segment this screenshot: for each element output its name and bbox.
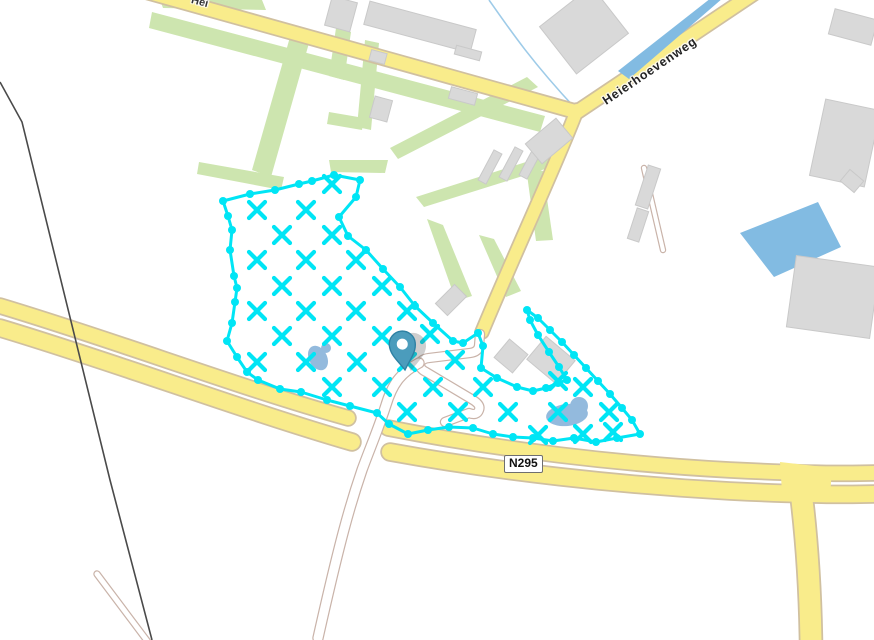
selection-x-mark (274, 278, 290, 294)
selection-vertex-handle[interactable] (445, 423, 453, 431)
track-casing (318, 363, 419, 638)
selection-vertex-handle[interactable] (469, 424, 477, 432)
selection-x-mark (348, 252, 364, 268)
selection-x-mark (274, 227, 290, 243)
selection-x-mark (324, 379, 340, 395)
selection-vertex-handle[interactable] (233, 284, 241, 292)
selection-vertex-handle[interactable] (233, 353, 241, 361)
selection-vertex-handle[interactable] (493, 374, 501, 382)
selection-vertex-handle[interactable] (526, 316, 534, 324)
selection-vertex-handle[interactable] (549, 437, 557, 445)
selection-vertex-handle[interactable] (228, 319, 236, 327)
map-canvas[interactable] (0, 0, 874, 640)
selection-vertex-handle[interactable] (246, 190, 254, 198)
green-area (427, 219, 472, 301)
building (635, 165, 660, 209)
selection-x-mark (274, 328, 290, 344)
selection-vertex-handle[interactable] (429, 319, 437, 327)
selection-vertex-handle[interactable] (582, 364, 590, 372)
selection-x-mark (374, 278, 390, 294)
selection-x-mark (500, 404, 516, 420)
building (325, 0, 358, 32)
selection-vertex-handle[interactable] (546, 326, 554, 334)
road (0, 306, 348, 418)
selection-vertex-handle[interactable] (594, 377, 602, 385)
green-area (329, 160, 388, 173)
selection-vertex-handle[interactable] (558, 338, 566, 346)
building (810, 99, 874, 187)
selection-vertex-handle[interactable] (228, 226, 236, 234)
selection-vertex-handle[interactable] (613, 434, 621, 442)
selection-vertex-handle[interactable] (529, 434, 537, 442)
map-viewport[interactable]: Hei Heierhoevenweg N295 (0, 0, 874, 640)
selection-x-mark (324, 227, 340, 243)
selection-vertex-handle[interactable] (489, 430, 497, 438)
selection-x-mark (348, 303, 364, 319)
selection-vertex-handle[interactable] (534, 314, 542, 322)
selection-vertex-handle[interactable] (563, 376, 571, 384)
pond (570, 397, 588, 415)
selection-vertex-handle[interactable] (555, 363, 563, 371)
selection-x-mark (298, 202, 314, 218)
selection-vertex-handle[interactable] (628, 416, 636, 424)
selection-vertex-handle[interactable] (477, 364, 485, 372)
selection-vertex-handle[interactable] (230, 272, 238, 280)
selection-vertex-handle[interactable] (474, 329, 482, 337)
selection-vertex-handle[interactable] (570, 434, 578, 442)
selection-vertex-handle[interactable] (636, 430, 644, 438)
selection-vertex-handle[interactable] (523, 306, 531, 314)
selection-vertex-handle[interactable] (243, 368, 251, 376)
selection-vertex-handle[interactable] (226, 246, 234, 254)
selection-x-mark (249, 303, 265, 319)
selection-vertex-handle[interactable] (459, 339, 467, 347)
selection-vertex-handle[interactable] (545, 348, 553, 356)
selection-vertex-handle[interactable] (295, 180, 303, 188)
selection-vertex-handle[interactable] (330, 171, 338, 179)
selection-vertex-handle[interactable] (592, 438, 600, 446)
selection-x-mark (475, 379, 491, 395)
selection-vertex-handle[interactable] (424, 426, 432, 434)
selection-vertex-handle[interactable] (352, 193, 360, 201)
building (828, 9, 874, 46)
selection-x-mark (249, 202, 265, 218)
selection-x-mark (374, 328, 390, 344)
selection-x-mark (298, 303, 314, 319)
selection-vertex-handle[interactable] (254, 376, 262, 384)
selection-vertex-handle[interactable] (356, 176, 364, 184)
selection-vertex-handle[interactable] (542, 384, 550, 392)
selection-vertex-handle[interactable] (554, 379, 562, 387)
selection-vertex-handle[interactable] (404, 430, 412, 438)
selection-vertex-handle[interactable] (308, 177, 316, 185)
selection-vertex-handle[interactable] (396, 283, 404, 291)
selection-vertex-handle[interactable] (224, 212, 232, 220)
canal (618, 0, 723, 79)
building (627, 208, 648, 242)
selection-x-mark (249, 354, 265, 370)
road (800, 484, 811, 640)
selection-vertex-handle[interactable] (618, 404, 626, 412)
selection-vertex-handle[interactable] (385, 420, 393, 428)
track (97, 574, 148, 640)
selection-vertex-handle[interactable] (529, 387, 537, 395)
selection-vertex-handle[interactable] (346, 402, 354, 410)
selection-x-mark (575, 379, 591, 395)
selection-x-mark (298, 252, 314, 268)
road (0, 328, 352, 442)
selection-vertex-handle[interactable] (271, 186, 279, 194)
selection-vertex-handle[interactable] (606, 390, 614, 398)
building (364, 1, 476, 53)
selection-x-mark (249, 252, 265, 268)
building (494, 339, 528, 373)
building (786, 256, 874, 339)
selection-vertex-handle[interactable] (231, 298, 239, 306)
selection-x-mark (324, 328, 340, 344)
selection-x-mark (349, 354, 365, 370)
building (540, 0, 629, 74)
selection-vertex-handle[interactable] (570, 351, 578, 359)
selection-x-mark (324, 278, 340, 294)
selection-vertex-handle[interactable] (344, 232, 352, 240)
selection-vertex-handle[interactable] (479, 342, 487, 350)
selection-vertex-handle[interactable] (223, 337, 231, 345)
selection-vertex-handle[interactable] (411, 302, 419, 310)
selection-vertex-handle[interactable] (513, 383, 521, 391)
selection-vertex-handle[interactable] (373, 409, 381, 417)
selection-vertex-handle[interactable] (379, 265, 387, 273)
selection-vertex-handle[interactable] (276, 385, 284, 393)
selection-vertex-handle[interactable] (449, 337, 457, 345)
selection-x-mark (399, 404, 415, 420)
selection-vertex-handle[interactable] (335, 213, 343, 221)
selection-vertex-handle[interactable] (534, 331, 542, 339)
route-shield: N295 (504, 455, 543, 473)
selection-vertex-handle[interactable] (323, 396, 331, 404)
selection-x-mark (601, 404, 617, 420)
selection-vertex-handle[interactable] (362, 246, 370, 254)
selection-vertex-handle[interactable] (219, 197, 227, 205)
selection-vertex-handle[interactable] (509, 433, 517, 441)
road-junction (780, 462, 832, 497)
selection-vertex-handle[interactable] (297, 388, 305, 396)
